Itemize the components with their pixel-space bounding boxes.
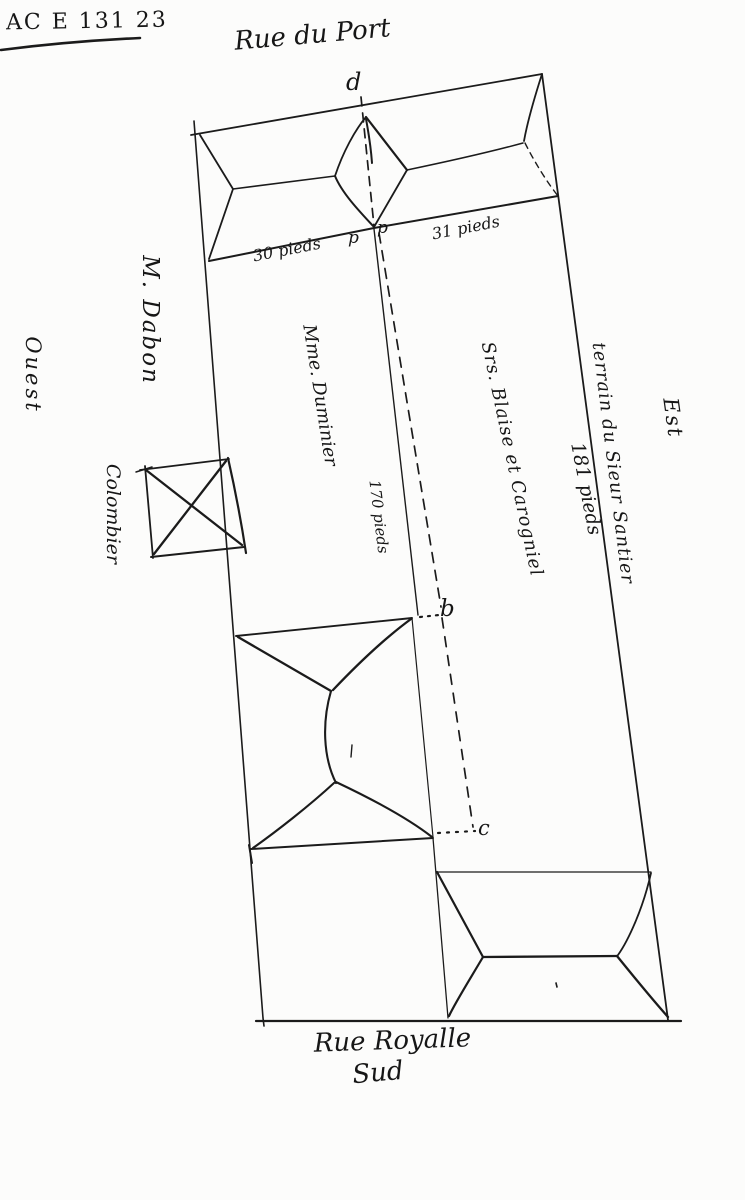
point-label-p1: p (348, 230, 359, 248)
street-label-rue-royalle: Rue Royalle (300, 1025, 486, 1059)
dashed-measure-line (361, 97, 475, 833)
point-label-c: c (478, 817, 490, 839)
archive-ref-underline (1, 38, 140, 50)
owner-west-neighbor: M. Dabon (138, 240, 162, 400)
sketch-page: AC E 131 23 Rue du Port d p p 30 pieds 3… (0, 0, 745, 1200)
colombier-label: Colombier (102, 454, 122, 574)
building-middle-roof (236, 618, 433, 863)
point-label-b: b (440, 597, 455, 621)
point-label-d: d (346, 70, 361, 95)
courtyard-east-edge (433, 838, 448, 1018)
point-label-p2: p (377, 220, 388, 238)
building-south-roof (437, 872, 668, 1017)
direction-ouest: Ouest (22, 320, 44, 430)
archive-ref: AC E 131 23 (6, 9, 166, 35)
colombier-square (136, 458, 246, 558)
